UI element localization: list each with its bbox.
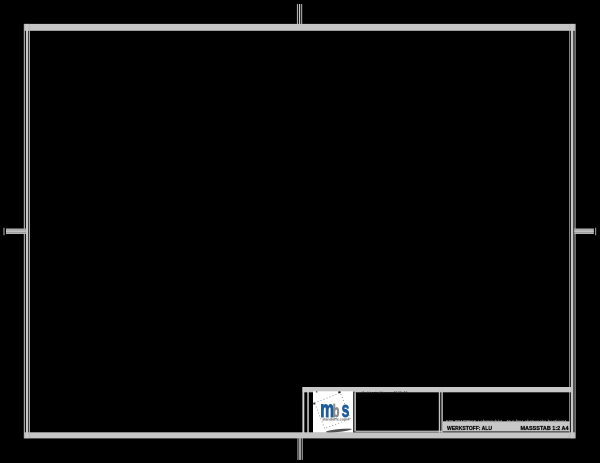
svg-text:WERKSTOFF: ALU: WERKSTOFF: ALU xyxy=(447,426,492,432)
svg-text:MASSSTAB 1:2 A4: MASSSTAB 1:2 A4 xyxy=(521,426,569,432)
svg-text:Alu-Konstruktionsprofil 30x30: Alu-Konstruktionsprofil 30x30 xyxy=(361,391,408,396)
svg-text:standoffs.com®: standoffs.com® xyxy=(322,417,351,421)
svg-text:SOLIDWORKS Lehrprodukt – Nur f: SOLIDWORKS Lehrprodukt – Nur für Lehrzwe… xyxy=(446,419,567,425)
